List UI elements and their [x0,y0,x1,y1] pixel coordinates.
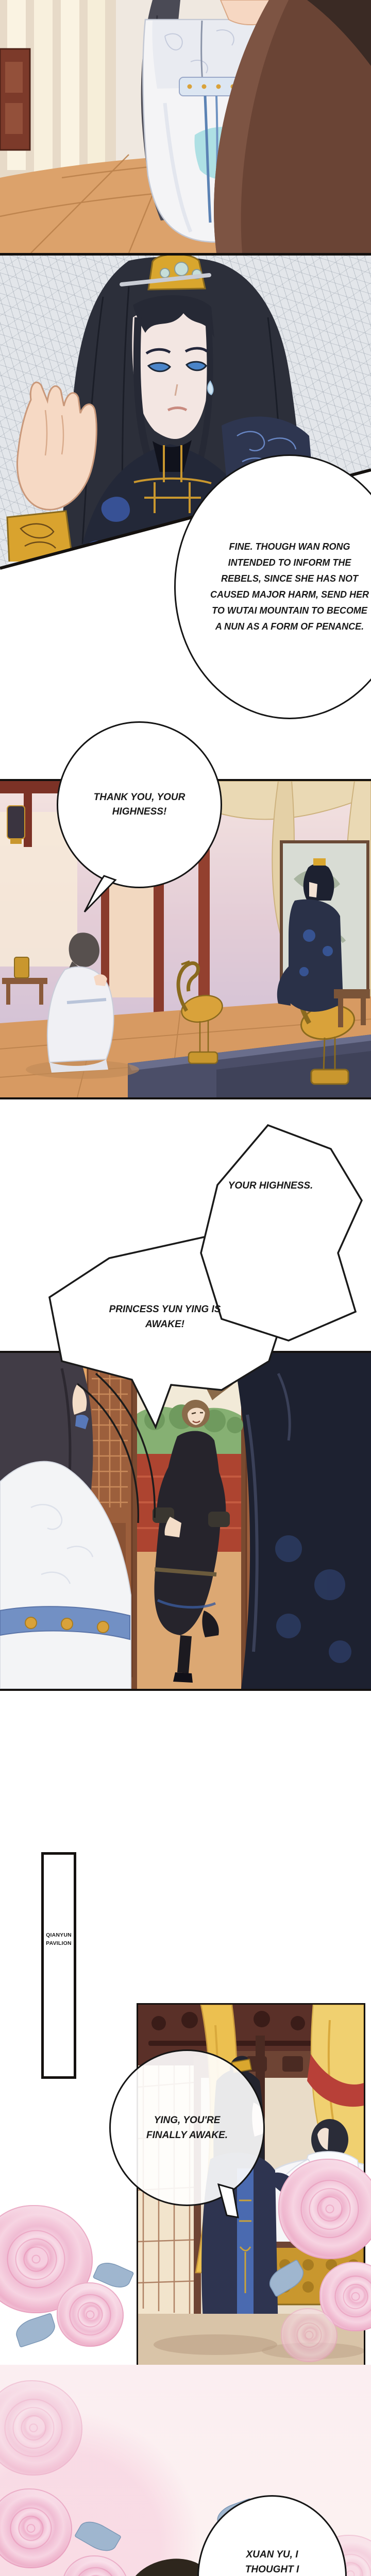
speech-text: THANK YOU, YOUR HIGHNESS! [89,790,190,820]
speech-text-your-highness: YOUR HIGHNESS. [211,1179,330,1194]
speech-text: FINE. THOUGH WAN RONG INTENDED TO INFORM… [209,539,370,635]
speech-text-princess-awake: PRINCESS YUN YING IS AWAKE! [98,1302,232,1332]
rose-flower [278,2159,371,2259]
rose-flower [57,2282,124,2347]
standing-figure-illustration [0,0,371,253]
location-sign-qianyun-pavilion: QIANYUN PAVILION [41,1852,76,2079]
speech-text: XUAN YU, I THOUGHT I WOULD NEVER SEE YOU… [227,2548,317,2576]
shout-bubbles [0,1108,371,1448]
bubble-tail [77,875,119,915]
panel-standing-figure [0,0,371,256]
speech-bubble-finally-awake: YING, YOU'RE FINALLY AWAKE. [109,2049,265,2206]
rose-flower [281,2308,338,2362]
bubble-tail [216,2183,243,2223]
rose-leaf [13,2313,58,2348]
speech-text: YING, YOU'RE FINALLY AWAKE. [140,2113,235,2143]
webtoon-page: FINE. THOUGH WAN RONG INTENDED TO INFORM… [0,0,371,2576]
speech-bubble-thank-you: THANK YOU, YOUR HIGHNESS! [57,721,222,888]
sign-line2: PAVILION [46,1939,72,1947]
sign-line1: QIANYUN [46,1931,72,1939]
